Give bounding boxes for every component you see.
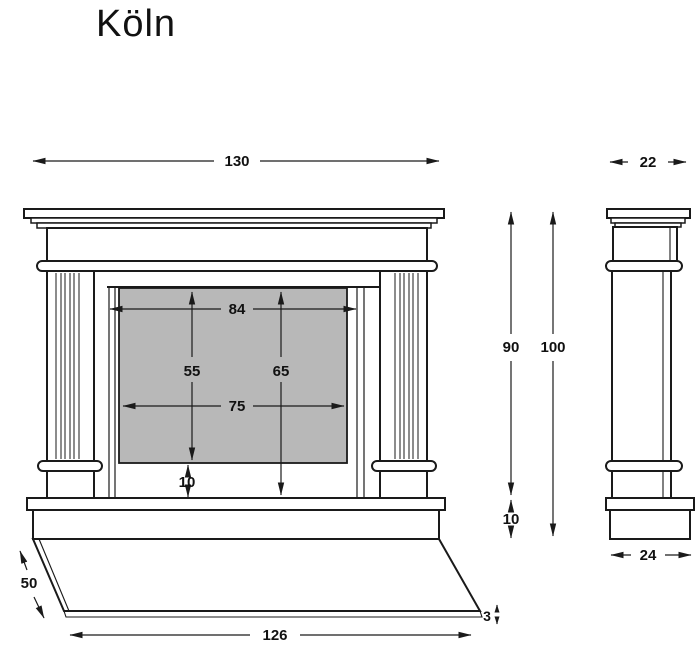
side-leg — [612, 271, 671, 461]
dim-overall-height: 100 — [540, 212, 565, 536]
dim-label-panel-height: 55 — [184, 363, 201, 380]
side-frieze — [613, 227, 677, 261]
side-shelf — [607, 209, 690, 218]
side-lower-band — [606, 461, 682, 471]
dim-label-hearth-width: 126 — [262, 627, 287, 644]
page-title: Köln — [96, 3, 176, 45]
side-base-cap — [606, 498, 694, 510]
side-view — [606, 209, 694, 539]
front-base-cap — [27, 498, 445, 510]
dim-label-panel-width: 75 — [229, 398, 246, 415]
dim-label-hearth-thickness: 3 — [483, 608, 491, 624]
dim-label-base-depth: 24 — [640, 547, 657, 564]
page: Köln — [0, 0, 698, 650]
dim-label-height-above-base: 90 — [503, 339, 520, 356]
side-upper-band — [606, 261, 682, 271]
dim-label-base-height: 10 — [503, 511, 520, 528]
front-shelf — [24, 209, 444, 218]
dim-panel-to-base-gap: 10 — [179, 465, 196, 497]
front-base-block — [33, 510, 439, 539]
dim-label-overall-height: 100 — [540, 339, 565, 356]
hearth-plate — [33, 539, 480, 611]
dim-label-panel-to-base-gap: 10 — [179, 474, 196, 491]
front-upper-band — [37, 261, 437, 271]
dim-label-hearth-depth: 50 — [21, 575, 38, 592]
front-frieze — [47, 228, 427, 261]
dim-hearth-width: 126 — [70, 627, 471, 644]
dim-base-depth: 24 — [611, 547, 691, 564]
front-view — [24, 209, 482, 617]
dim-hearth-depth: 50 — [20, 551, 44, 618]
dim-label-opening-height: 65 — [273, 363, 290, 380]
side-leg-lower — [612, 471, 671, 498]
left-column-plinth — [47, 471, 94, 498]
dim-label-opening-width: 84 — [229, 301, 246, 318]
left-column-collar — [38, 461, 102, 471]
fireplace-dimension-diagram: Köln — [0, 0, 698, 650]
dim-shelf-depth: 22 — [610, 154, 686, 171]
dim-hearth-thickness: 3 — [483, 605, 497, 624]
dim-label-shelf-depth: 22 — [640, 154, 657, 171]
dim-overall-width: 130 — [33, 153, 439, 170]
dim-label-overall-width: 130 — [224, 153, 249, 170]
right-column-plinth — [380, 471, 427, 498]
side-base-block — [610, 510, 690, 539]
right-column-collar — [372, 461, 436, 471]
dim-height-above-base: 90 — [503, 212, 520, 495]
dim-base-height: 10 — [503, 500, 520, 538]
